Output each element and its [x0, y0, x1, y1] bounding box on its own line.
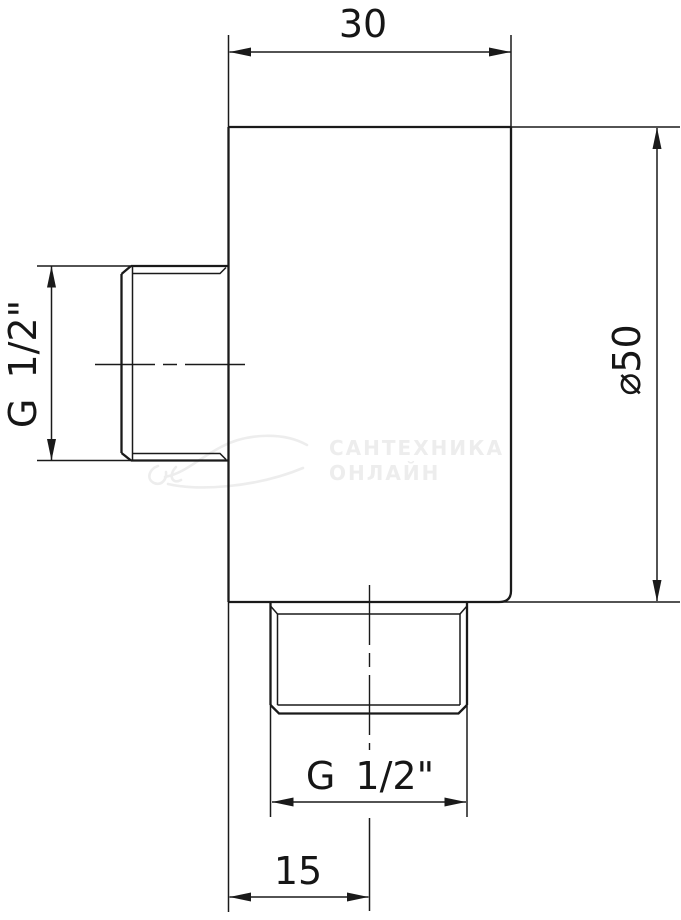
arrowhead-right-icon [489, 48, 511, 57]
dimension-top-width: 30 [230, 2, 511, 57]
arrowhead-left-icon [272, 798, 294, 807]
dimension-left-thread: G 1/2" [1, 266, 56, 461]
dim-diameter-label: ⌀50 [605, 324, 649, 395]
watermark-swoosh-icon [149, 466, 166, 484]
technical-drawing-canvas: САНТЕХНИКА ОНЛАЙН [0, 0, 681, 920]
watermark-line1: САНТЕХНИКА [329, 436, 504, 460]
arrowhead-left-icon [230, 48, 252, 57]
fitting-chamfer [122, 266, 132, 274]
watermark-swoosh-icon [165, 436, 307, 477]
arrowhead-down-icon [47, 439, 56, 461]
left-fitting [37, 266, 229, 461]
dim-top-width-label: 30 [339, 2, 387, 46]
fitting-end-face [271, 705, 468, 714]
dim-bottom-thread-label: G 1/2" [306, 754, 434, 798]
arrowhead-down-icon [653, 580, 662, 602]
dimension-bottom-offset: 15 [230, 849, 369, 902]
thread-minor-line [133, 268, 227, 274]
arrowhead-right-icon [347, 893, 369, 902]
arrowhead-left-icon [230, 893, 252, 902]
watermark-line2: ОНЛАЙН [329, 461, 440, 485]
arrowhead-up-icon [47, 266, 56, 288]
dim-bottom-offset-label: 15 [274, 849, 322, 893]
thread-minor-line [133, 454, 227, 460]
drawing-page: САНТЕХНИКА ОНЛАЙН [0, 0, 681, 920]
arrowhead-up-icon [653, 128, 662, 150]
dimension-bottom-thread: G 1/2" [272, 754, 466, 807]
dimension-diameter: ⌀50 [605, 128, 662, 602]
fitting-chamfer [122, 453, 132, 461]
arrowhead-right-icon [445, 798, 467, 807]
body-right-edge [499, 127, 511, 602]
watermark-swoosh-icon [168, 468, 303, 487]
body-outline [229, 35, 681, 912]
dim-left-thread-label: G 1/2" [1, 300, 45, 428]
